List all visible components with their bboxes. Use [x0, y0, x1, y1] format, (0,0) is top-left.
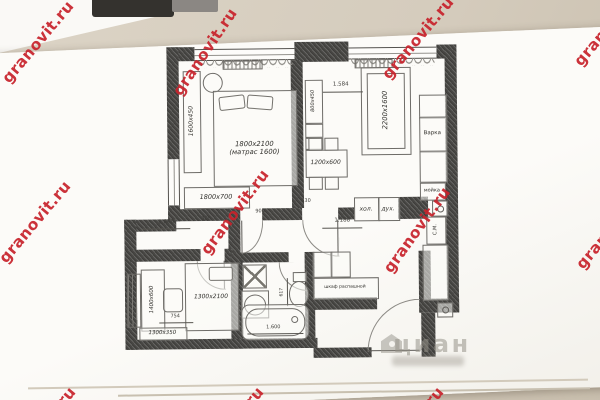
dimension-gap: 300	[201, 216, 211, 222]
bed-size: 1800x2100	[235, 140, 274, 148]
pillow	[246, 94, 273, 110]
wall	[125, 249, 201, 262]
fridge-label: хол.	[360, 205, 373, 213]
dimension-bed-offset: 754	[170, 313, 180, 319]
kitchen-cabinet	[419, 150, 447, 182]
wall	[231, 252, 289, 263]
chair	[308, 138, 322, 151]
dimension-toilet-offset: 617	[279, 288, 284, 297]
dimension-bathtub: 1.600	[266, 324, 280, 330]
wall	[294, 41, 348, 62]
wall	[166, 47, 179, 159]
bedroom-wardrobe-bottom-label: 1800x700	[200, 193, 233, 201]
photo-of-floor-plan: 1600x450 1800x2100 (матрас 1600) 1800x70…	[0, 0, 600, 400]
sofa-label: 2200x1600	[381, 91, 389, 130]
door-arc-bedroom	[241, 220, 263, 253]
pillow	[218, 94, 245, 111]
dimension-sofa-offset: 1.584	[333, 81, 349, 87]
watermark-cian-blur	[392, 356, 464, 366]
bedroom-wardrobe-label: 1600x450	[188, 106, 195, 136]
cooktop-label: Варка	[424, 130, 441, 137]
wall	[314, 347, 372, 358]
cabinet	[305, 124, 323, 138]
dining-table-label: 1200x600	[310, 159, 340, 167]
watermark-cian: циан	[393, 330, 470, 358]
dimension-table-offset: 530	[301, 198, 311, 204]
kids-shelf-label: 1300x350	[148, 330, 176, 337]
intercom-box	[437, 302, 453, 317]
chair	[309, 177, 323, 190]
radiator	[223, 60, 263, 69]
chair	[324, 138, 338, 151]
wall	[262, 208, 302, 220]
entry-wardrobe-label: шкаф распашной	[324, 285, 365, 291]
kitchen-tall-cabinet	[422, 244, 449, 300]
kids-bed-label: 1300x2100	[194, 293, 228, 301]
appliance-label: С.М.	[432, 224, 438, 235]
entry-cabinet	[331, 251, 351, 277]
washing-machine	[243, 264, 267, 288]
window-side	[168, 159, 180, 205]
desk-chair	[163, 288, 183, 312]
radiator	[127, 274, 142, 328]
dimension-line	[323, 91, 363, 92]
bedroom-bed-label: 1800x2100 (матрас 1600)	[229, 140, 279, 157]
floor-plan: 1600x450 1800x2100 (матрас 1600) 1800x70…	[0, 0, 600, 400]
oven-label: дух.	[381, 205, 394, 213]
chair	[325, 177, 339, 190]
kitchen-cabinet	[419, 94, 447, 118]
bathtub-drain	[291, 316, 298, 323]
pillow	[209, 267, 233, 281]
dimension-room-width: 2.800	[158, 219, 174, 225]
kids-desk-label: 1400x600	[149, 286, 155, 314]
bed-note: (матрас 1600)	[229, 148, 279, 157]
dimension-opening: 900	[255, 208, 265, 214]
living-wardrobe-label: 800x450	[310, 90, 316, 112]
